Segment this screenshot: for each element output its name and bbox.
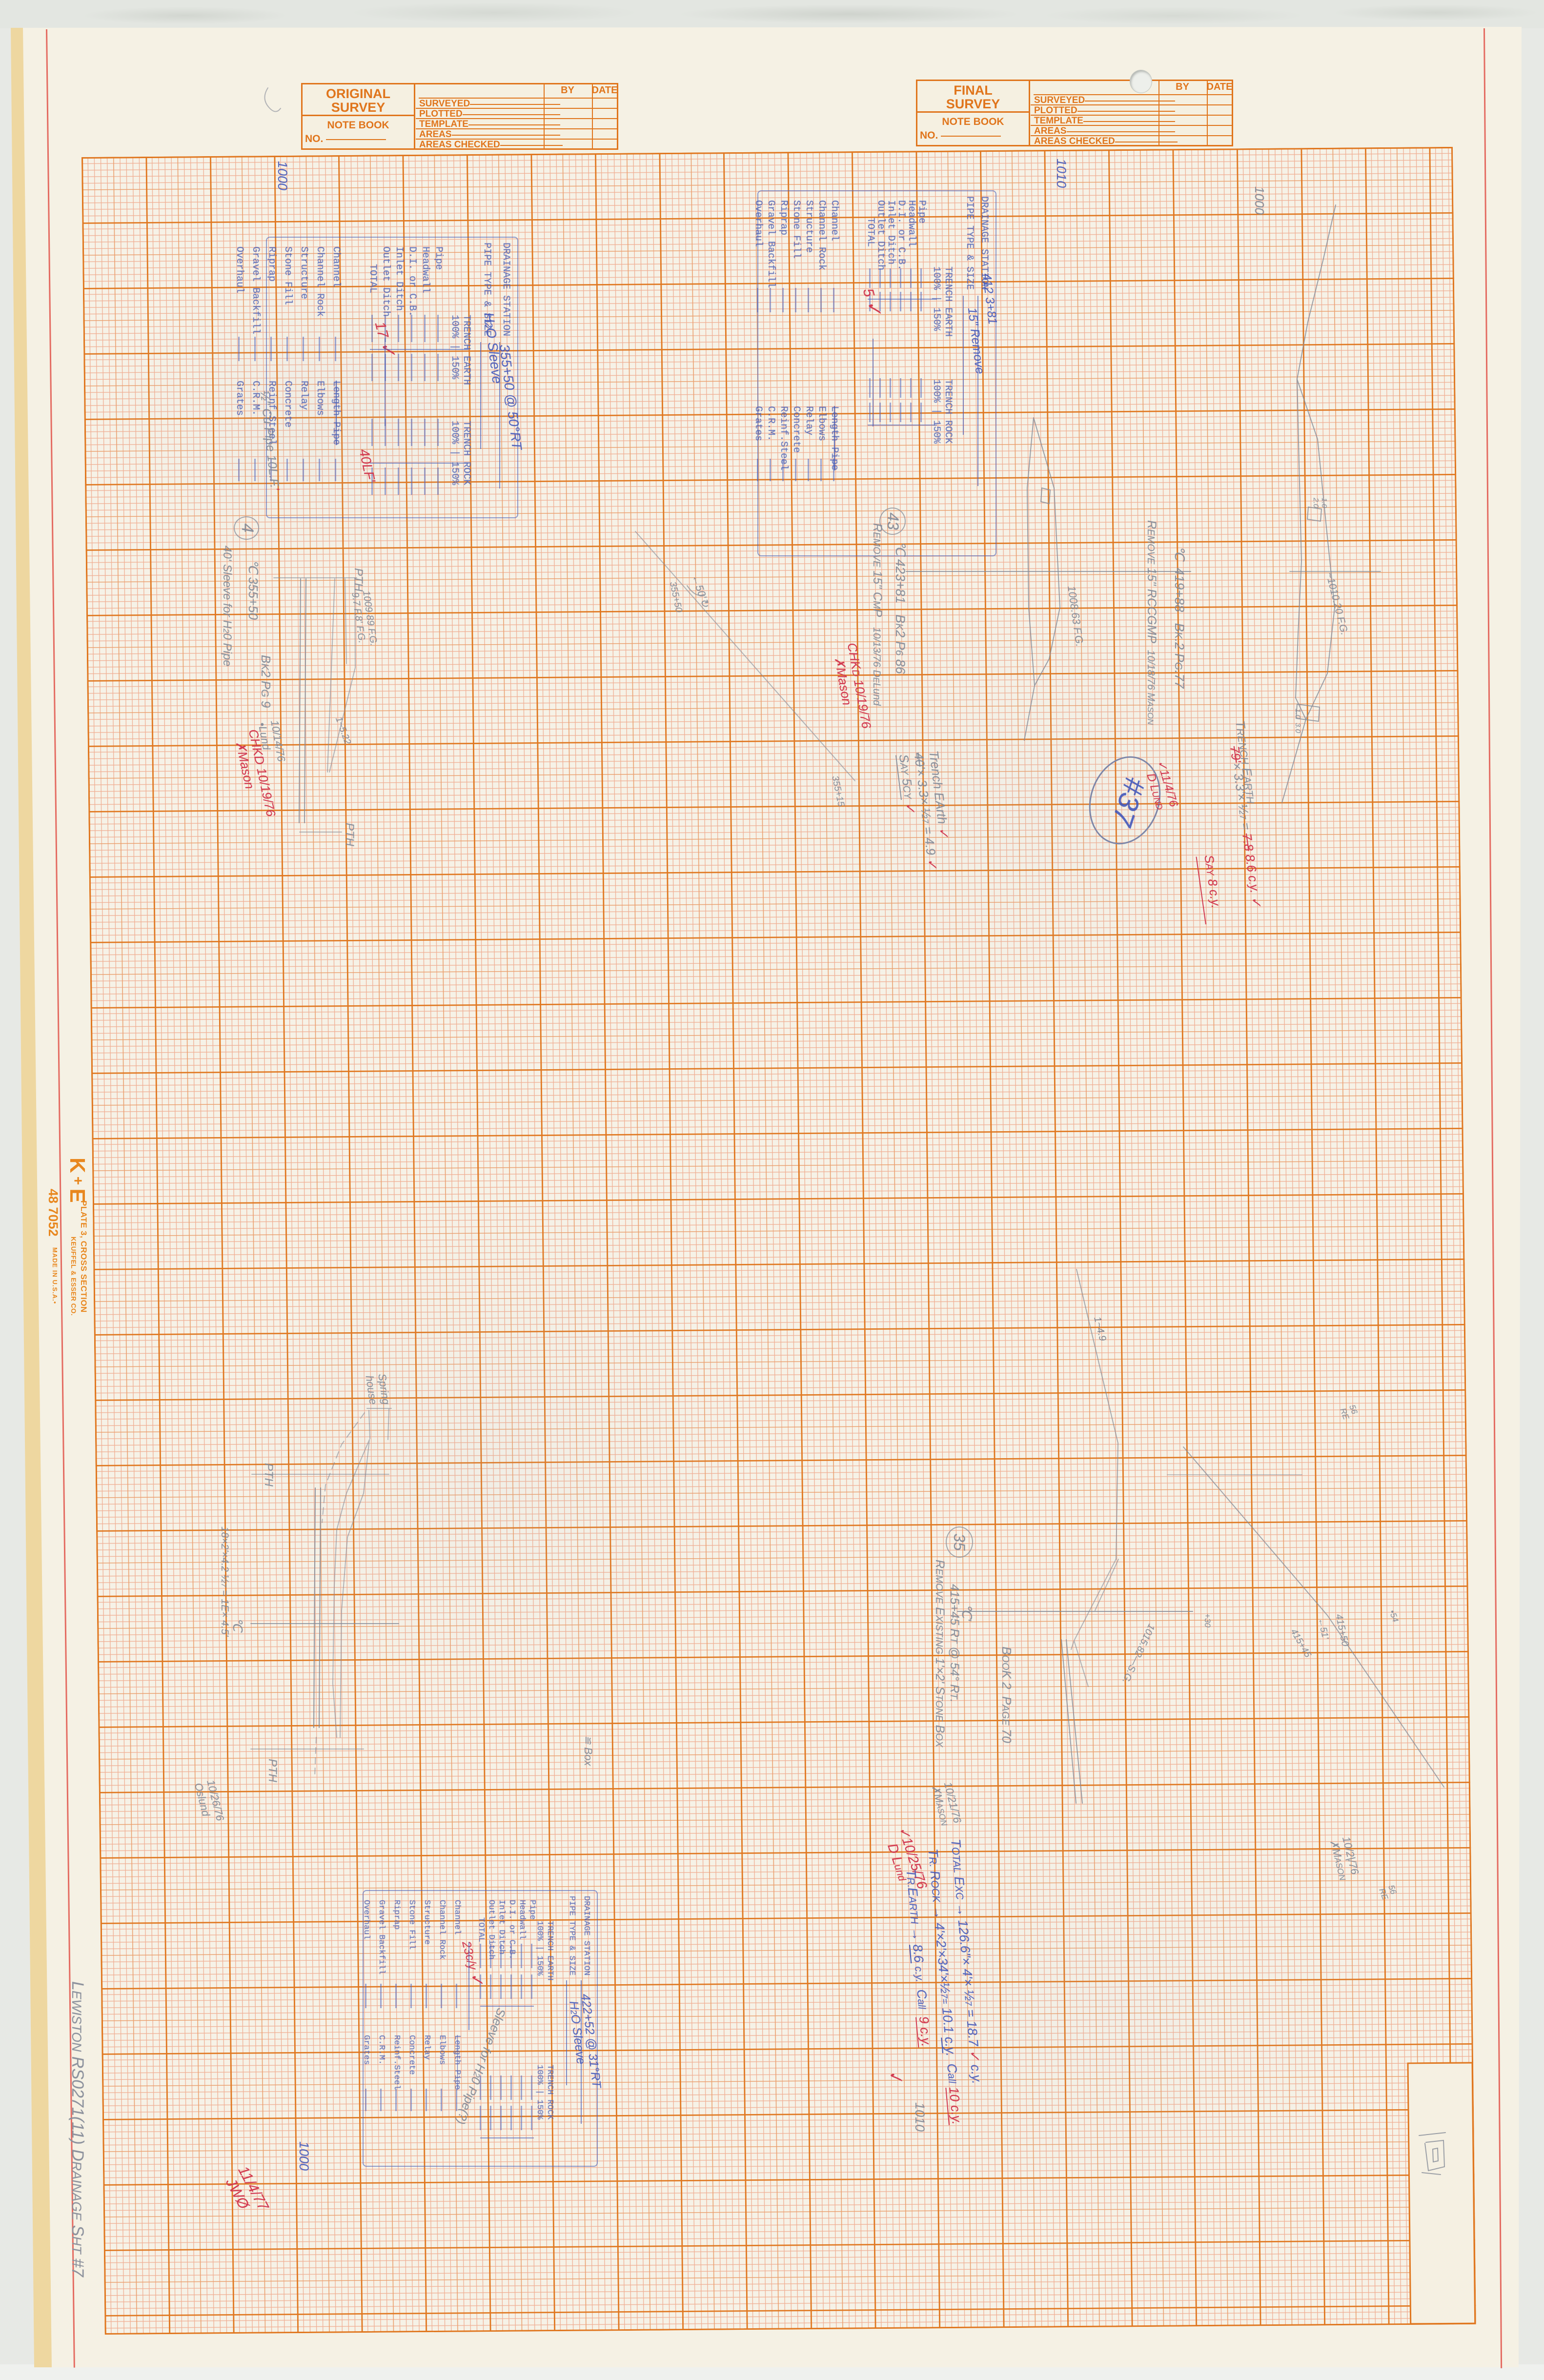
svg-text:1~4.9: 1~4.9: [1092, 1316, 1108, 1342]
